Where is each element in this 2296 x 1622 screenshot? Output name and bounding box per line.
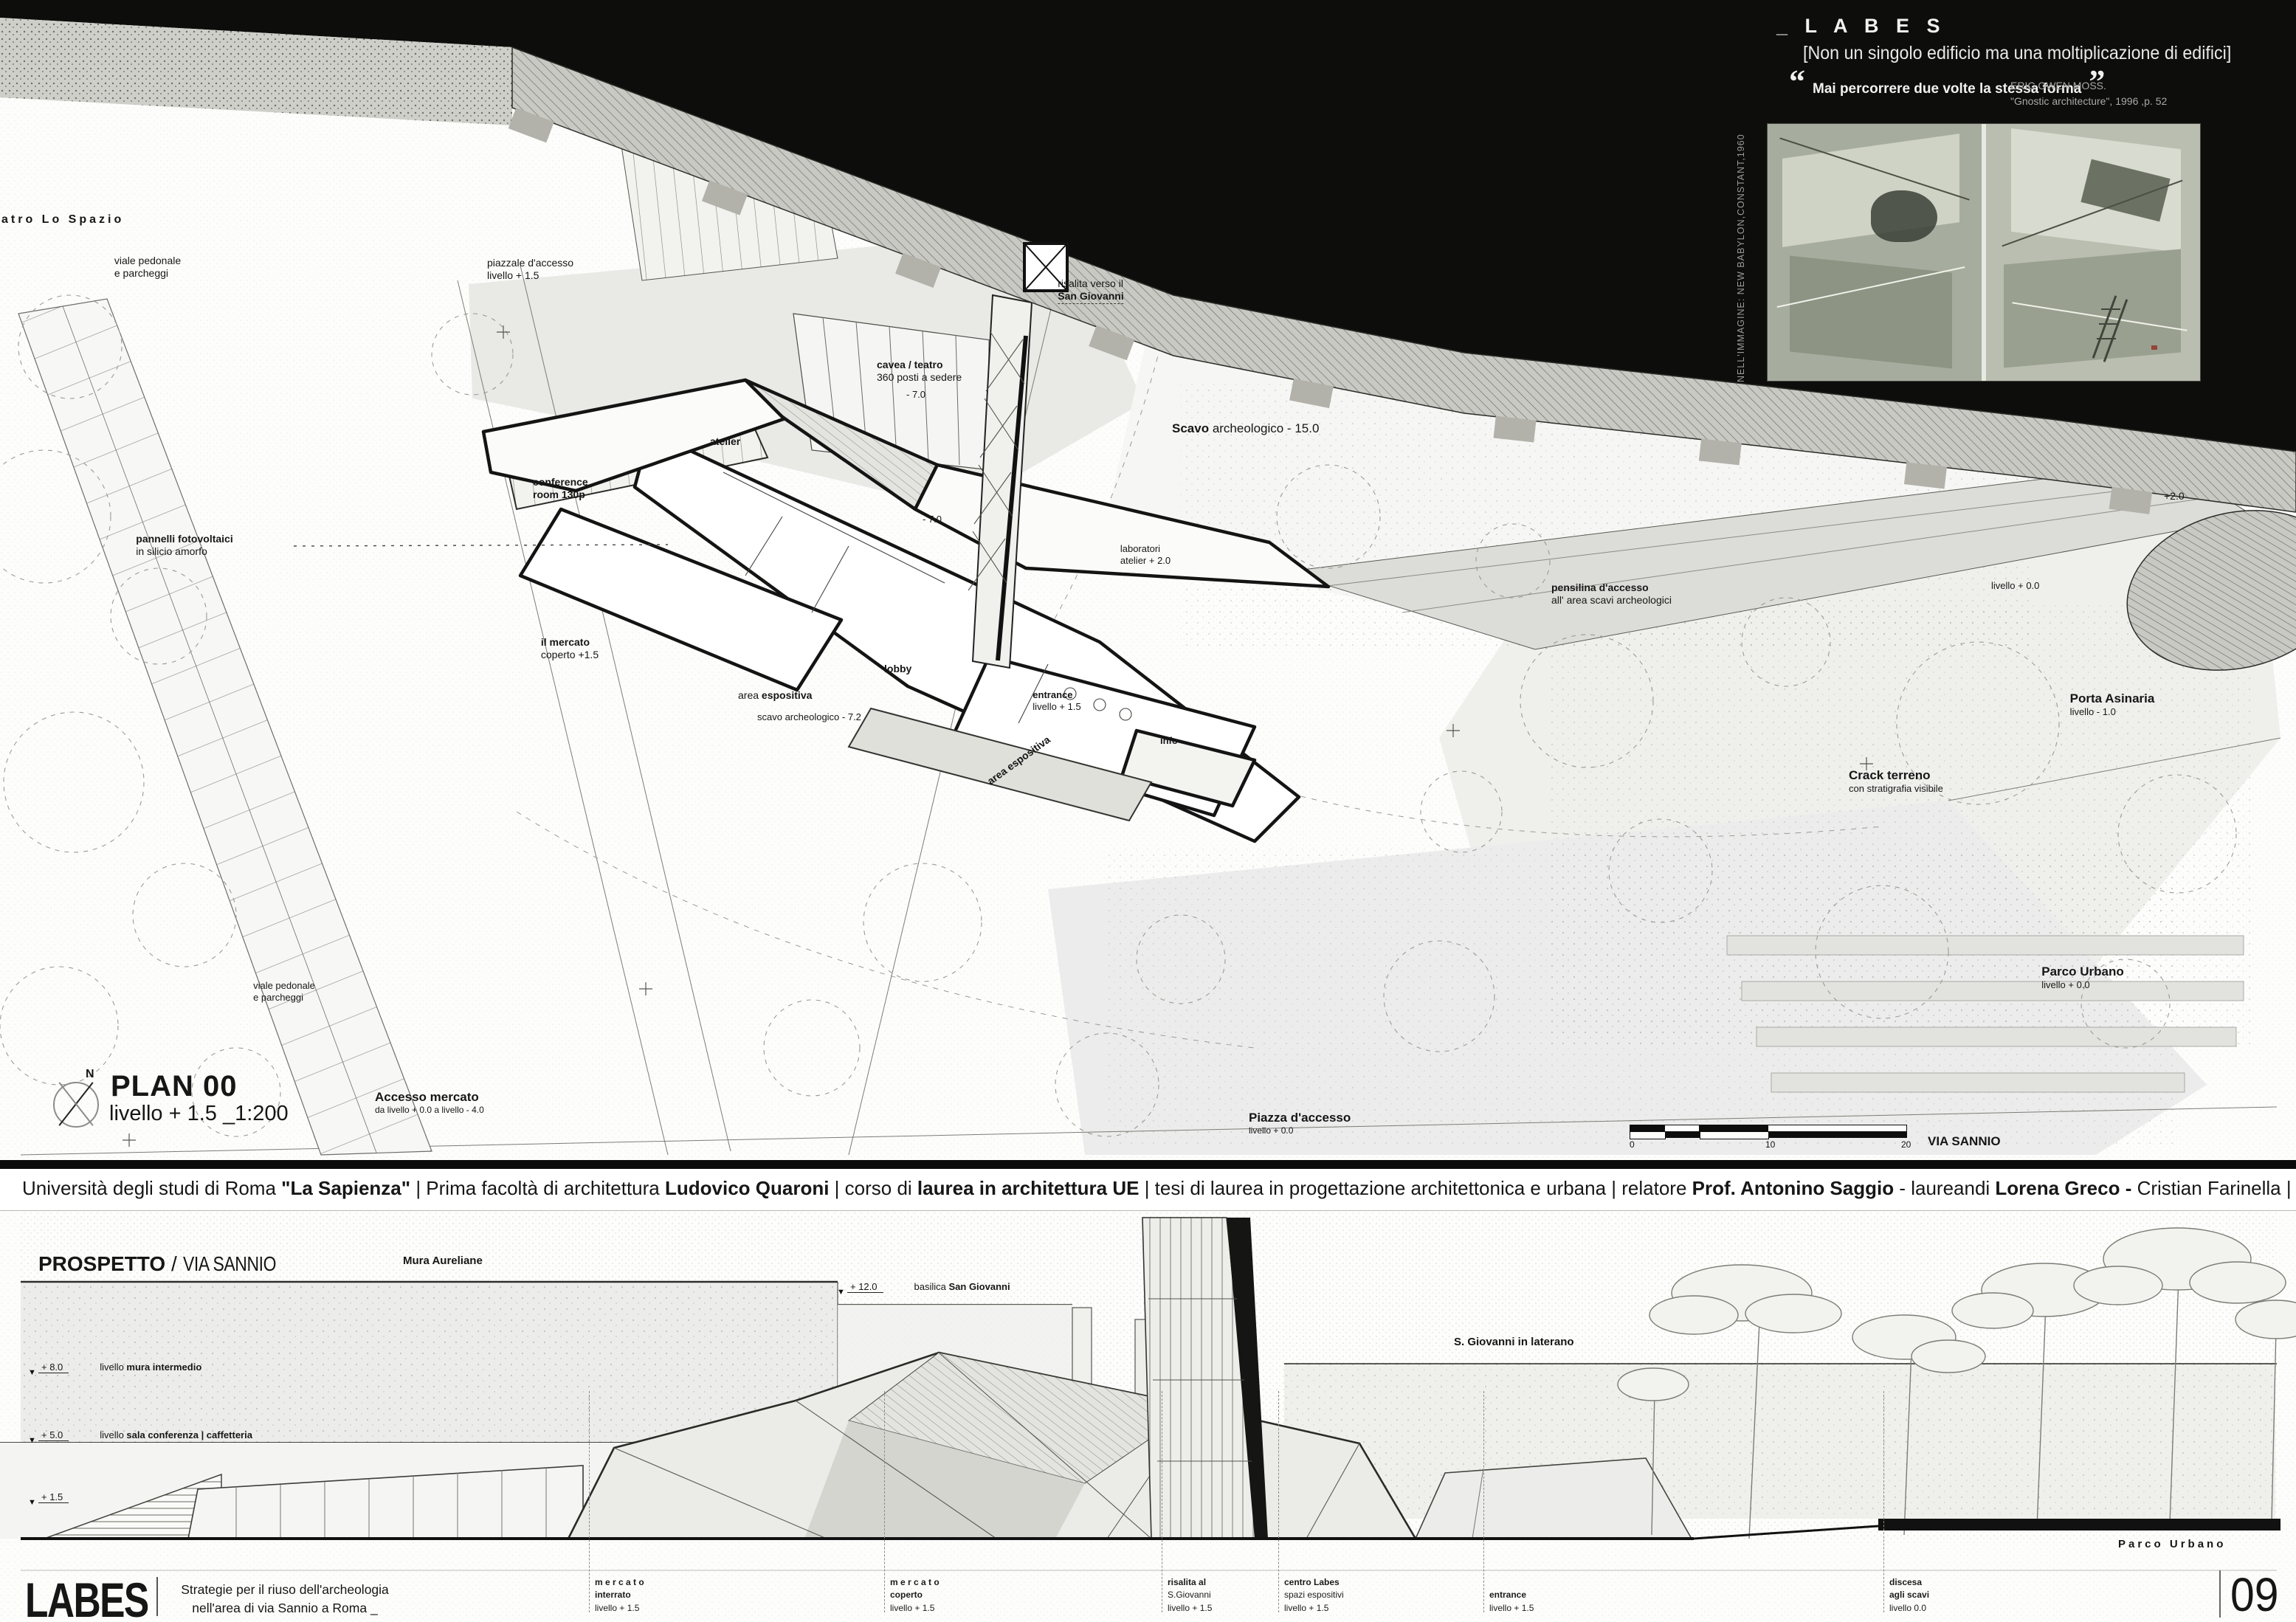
label-scavo-archeologico-15: Scavo archeologico - 15.0 <box>1172 421 1319 436</box>
level-triangle-icon: ▼ <box>28 1368 36 1377</box>
label-info: info <box>1160 735 1178 747</box>
blbl-discesa: discesaagli scavilivello 0.0 <box>1889 1576 1929 1615</box>
page-number-divider <box>2219 1570 2221 1618</box>
label-teatro-lo-spazio: atro Lo Spazio <box>1 213 124 227</box>
label-parco-urbano-plan: Parco Urbanolivello + 0.0 <box>2041 964 2123 991</box>
label-cavea-quota: - 7.0 <box>906 389 925 401</box>
label-area-espositiva-1: area espositiva <box>738 689 812 702</box>
north-label: N <box>86 1067 94 1082</box>
label-piazzale-accesso: piazzale d'accessolivello + 1.5 <box>487 257 573 283</box>
scale-tick: 20 <box>1901 1139 1911 1150</box>
label-atelier: atelier <box>710 435 740 448</box>
credits-band: Università degli studi di Roma "La Sapie… <box>0 1160 2296 1211</box>
label-piazza-accesso: Piazza d'accessolivello + 0.0 <box>1249 1110 1351 1136</box>
label-viale-pedonale-nord: viale pedonalee parcheggi <box>114 255 181 280</box>
label-via-sannio: VIA SANNIO <box>1928 1133 2001 1149</box>
level-label: basilica San Giovanni <box>914 1281 1010 1292</box>
marker-15: ▼+ 1.5 <box>38 1491 69 1502</box>
blbl-entrance: entrancelivello + 1.5 <box>1489 1576 1534 1615</box>
label-pannelli-fotovoltaici: pannelli fotovoltaiciin silicio amorfo <box>136 533 232 559</box>
label-accesso-mercato: Accesso mercatoda livello + 0.0 a livell… <box>375 1089 484 1116</box>
level-value: + 5.0 <box>38 1429 69 1441</box>
label-parco-urbano-elev: Parco Urbano <box>2118 1538 2226 1552</box>
label-mercato-coperto: il mercatocoperto +1.5 <box>541 636 599 662</box>
new-babylon-image <box>1768 124 2200 381</box>
label-quota-meno7: - 7.0 <box>923 514 942 525</box>
credits-text: Università degli studi di Roma "La Sapie… <box>22 1177 2296 1200</box>
footer-subtitle-line1: Strategie per il riuso dell'archeologia <box>174 1581 396 1599</box>
elevation-title-light: VIA SANNIO <box>183 1252 276 1277</box>
level-value: + 8.0 <box>38 1362 69 1373</box>
marker-12: ▼+ 12.0basilica San Giovanni <box>847 1281 1010 1292</box>
label-risalita-san-giovanni: risalita verso ilSan Giovanni <box>1058 277 1123 304</box>
presentation-board: _ L A B E S [Non un singolo edificio ma … <box>0 0 2296 1622</box>
label-crack-terreno: Crack terrenocon stratigrafia visibile <box>1849 767 1943 795</box>
level-label: livello sala conferenza | caffetteria <box>100 1429 252 1440</box>
elevation-drawing <box>0 1210 2296 1570</box>
board-subtitle: [Non un singolo edificio ma una moltipli… <box>1803 43 2231 64</box>
footer-divider <box>156 1577 158 1616</box>
footer-subtitle: Strategie per il riuso dell'archeologia … <box>174 1581 396 1618</box>
level-label: livello mura intermedio <box>100 1362 201 1373</box>
quote-source: "Gnostic architecture", 1996 ,p. 52 <box>2010 94 2167 109</box>
label-lobby: lobby <box>884 663 911 675</box>
label-pensilina: pensilina d'accessoall' area scavi arche… <box>1551 581 1672 607</box>
label-viale-pedonale-sud: viale pedonalee parcheggi <box>253 980 315 1004</box>
quote-author: ERIC OWEN MOSS. <box>2010 78 2167 94</box>
scale-bar: 01020 <box>1630 1125 1907 1150</box>
blbl-risalita: risalita alS.Giovannilivello + 1.5 <box>1168 1576 1212 1615</box>
labes-logo: LABES <box>25 1572 148 1622</box>
plan-title: PLAN 00 <box>111 1069 238 1105</box>
scale-tick: 10 <box>1765 1139 1775 1150</box>
level-triangle-icon: ▼ <box>28 1498 36 1507</box>
marker-8: ▼+ 8.0livello mura intermedio <box>38 1362 201 1373</box>
level-value: + 1.5 <box>38 1491 69 1503</box>
page-number: 09 <box>2230 1567 2278 1622</box>
leader-line <box>1278 1391 1279 1612</box>
label-scavo-72: scavo archeologico - 7.2 <box>757 711 861 723</box>
blbl-mercato-coperto: m e r c a t ocopertolivello + 1.5 <box>890 1576 940 1615</box>
blbl-centro-labes: centro Labesspazi espositivilivello + 1.… <box>1284 1576 1344 1615</box>
open-quote-icon: “ <box>1789 71 1805 94</box>
scale-tick: 0 <box>1630 1139 1635 1150</box>
leader-line <box>1883 1391 1884 1612</box>
label-s-giovanni-laterano: S. Giovanni in laterano <box>1454 1336 1574 1350</box>
label-quota-piu2: +2.0 <box>2164 490 2185 503</box>
label-mura-aureliane: Mura Aureliane <box>403 1255 483 1269</box>
elevation-title-bold: PROSPETTO <box>38 1252 165 1275</box>
leader-line <box>589 1391 590 1612</box>
leader-line <box>1162 1391 1162 1612</box>
label-porta-asinaria: Porta Asinarialivello - 1.0 <box>2070 691 2155 718</box>
level-value: + 12.0 <box>847 1281 883 1293</box>
label-livello-00-est: livello + 0.0 <box>1991 580 2039 592</box>
north-arrow-icon <box>53 1082 99 1128</box>
marker-5: ▼+ 5.0livello sala conferenza | caffette… <box>38 1429 252 1440</box>
label-conference-room: conferenceroom 130p <box>533 476 588 502</box>
blbl-mercato-interrato: m e r c a t ointerratolivello + 1.5 <box>595 1576 644 1615</box>
quote-attribution: ERIC OWEN MOSS. "Gnostic architecture", … <box>2010 78 2167 109</box>
level-triangle-icon: ▼ <box>837 1288 845 1297</box>
footer-subtitle-line2: nell'area di via Sannio a Roma _ <box>174 1599 396 1618</box>
label-entrance: entrancelivello + 1.5 <box>1032 689 1080 713</box>
board-title: _ L A B E S <box>1776 15 1946 38</box>
level-triangle-icon: ▼ <box>28 1436 36 1445</box>
elevation-title: PROSPETTO / VIA SANNIO <box>38 1252 296 1277</box>
image-caption: NELL'IMMAGINE: NEW BABYLON,CONSTANT,1960 <box>1736 124 1746 382</box>
plan-scale: livello + 1.5 _1:200 <box>109 1101 289 1128</box>
leader-line <box>1483 1391 1484 1612</box>
label-cavea-teatro: cavea / teatro360 posti a sedere <box>877 359 962 384</box>
elevation-title-sep: / <box>165 1252 182 1275</box>
label-laboratori: laboratoriatelier + 2.0 <box>1120 543 1171 567</box>
leader-line <box>884 1391 885 1612</box>
